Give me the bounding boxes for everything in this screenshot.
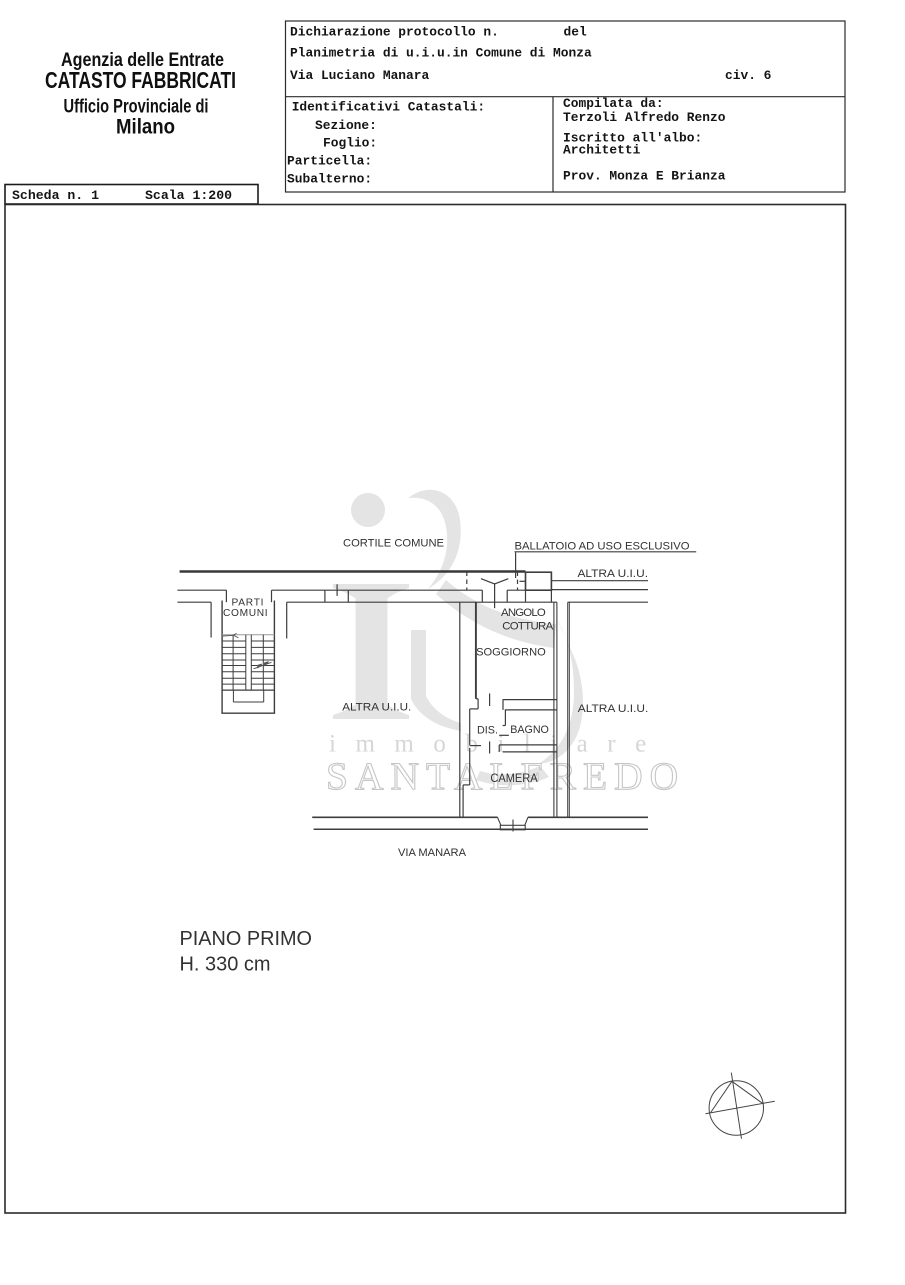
svg-text:Subalterno:: Subalterno: <box>287 171 372 186</box>
svg-text:H. 330 cm: H. 330 cm <box>180 954 271 976</box>
svg-text:COMUNI: COMUNI <box>223 608 267 619</box>
svg-text:CATASTO FABBRICATI: CATASTO FABBRICATI <box>45 67 236 93</box>
svg-text:Identificativi Catastali:: Identificativi Catastali: <box>292 100 485 115</box>
svg-text:ANGOLO: ANGOLO <box>501 607 546 619</box>
svg-text:Milano: Milano <box>116 116 175 139</box>
svg-text:BAGNO: BAGNO <box>510 724 549 736</box>
svg-text:Compilata da:: Compilata da: <box>563 96 664 111</box>
svg-text:COTTURA: COTTURA <box>502 621 553 633</box>
svg-text:Particella:: Particella: <box>287 153 372 168</box>
svg-text:Ufficio Provinciale di: Ufficio Provinciale di <box>64 97 209 118</box>
svg-text:civ. 6: civ. 6 <box>725 68 772 83</box>
svg-text:del: del <box>564 25 587 40</box>
svg-text:Planimetria di u.i.u.in Comune: Planimetria di u.i.u.in Comune di Monza <box>290 46 592 61</box>
svg-text:Via Luciano Manara: Via Luciano Manara <box>290 68 430 83</box>
svg-text:Dichiarazione protocollo n.: Dichiarazione protocollo n. <box>290 25 499 40</box>
svg-text:Architetti: Architetti <box>563 142 641 157</box>
svg-text:Sezione:: Sezione: <box>315 118 377 133</box>
svg-text:DIS.: DIS. <box>477 725 498 737</box>
svg-text:Scheda n. 1: Scheda n. 1 <box>12 188 99 203</box>
svg-text:CORTILE COMUNE: CORTILE COMUNE <box>343 537 444 549</box>
svg-text:BALLATOIO AD USO ESCLUSIVO: BALLATOIO AD USO ESCLUSIVO <box>515 540 690 552</box>
svg-text:VIA MANARA: VIA MANARA <box>398 847 466 859</box>
svg-text:Terzoli Alfredo Renzo: Terzoli Alfredo Renzo <box>563 110 726 125</box>
svg-text:PIANO PRIMO: PIANO PRIMO <box>180 928 313 950</box>
svg-text:SOGGIORNO: SOGGIORNO <box>476 647 546 659</box>
svg-text:Foglio:: Foglio: <box>323 135 377 150</box>
svg-text:CAMERA: CAMERA <box>490 771 537 785</box>
svg-text:ALTRA U.I.U.: ALTRA U.I.U. <box>342 701 411 713</box>
svg-text:Scala 1:200: Scala 1:200 <box>145 188 232 203</box>
svg-text:ALTRA U.I.U.: ALTRA U.I.U. <box>578 568 649 580</box>
svg-text:ALTRA U.I.U.: ALTRA U.I.U. <box>578 703 649 715</box>
svg-text:Prov. Monza E Brianza: Prov. Monza E Brianza <box>563 169 726 184</box>
